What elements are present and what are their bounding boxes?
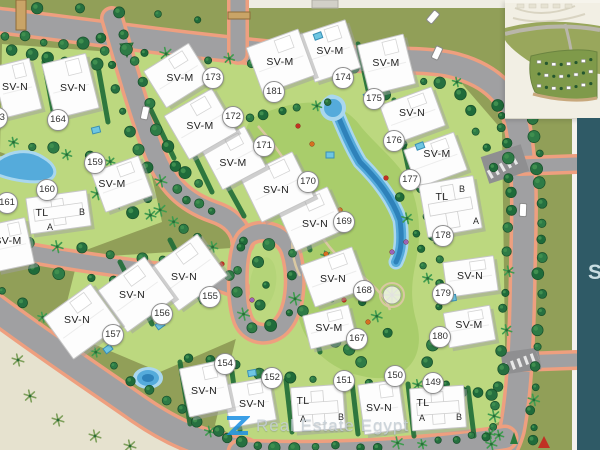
watermark-text: Real Estate Egypt xyxy=(256,416,409,436)
site-plan-page: TLAB149SV-N150TLAB151SV-N152SV-N154SV-N1… xyxy=(0,0,600,450)
watermark: Real Estate Egypt xyxy=(224,414,409,438)
side-panel: S xyxy=(577,118,600,450)
overview-inset-map xyxy=(505,0,600,119)
watermark-logo-icon xyxy=(224,414,250,438)
side-panel-partial-text: S xyxy=(588,261,600,285)
overview-inset-canvas xyxy=(505,0,600,118)
